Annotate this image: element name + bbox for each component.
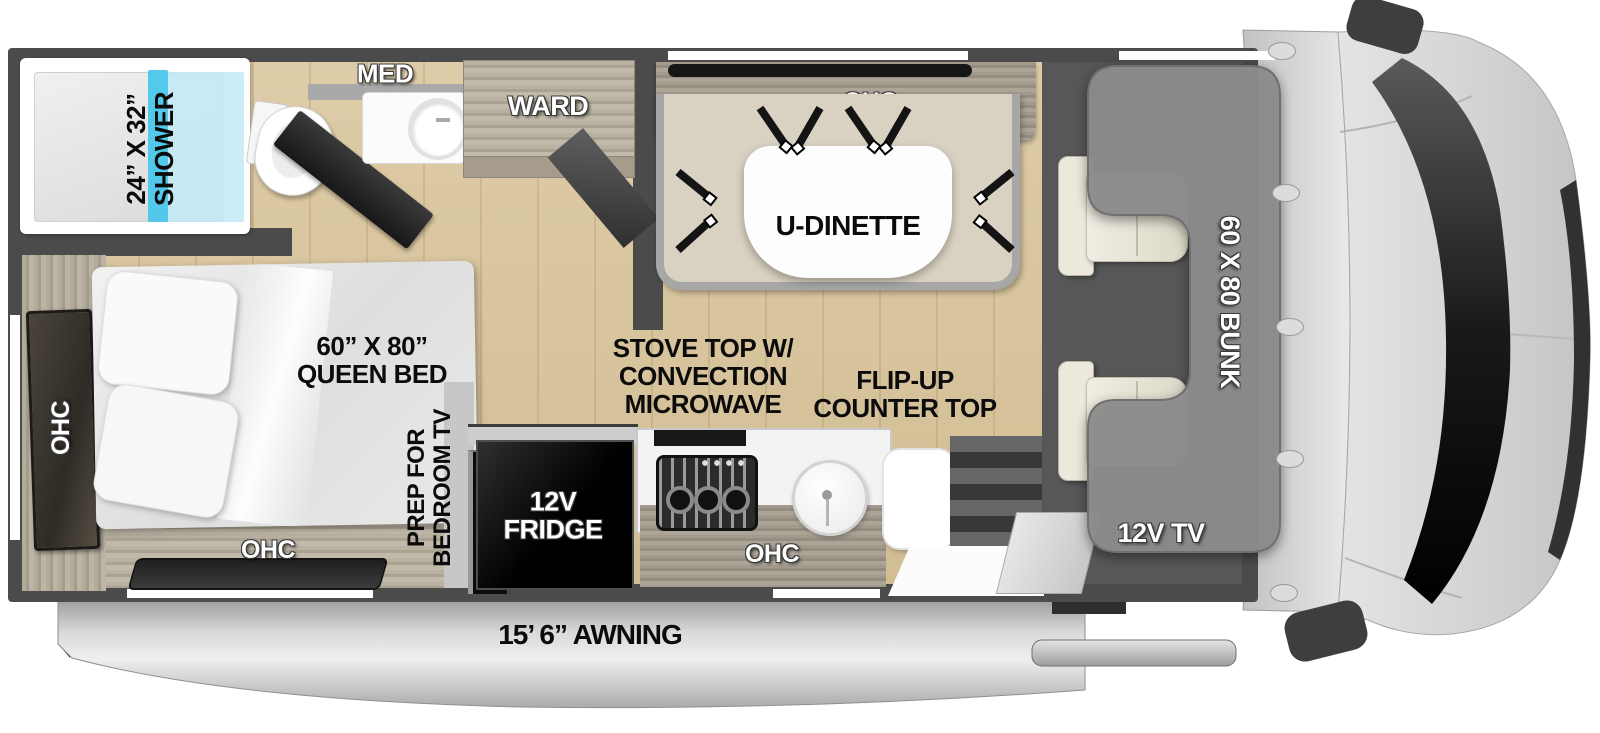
clearance-knob-icon <box>1272 184 1300 202</box>
clearance-knob-icon <box>1276 318 1304 336</box>
awning-label: 15’ 6” AWNING <box>498 620 682 650</box>
bunk-overlay <box>0 0 1600 733</box>
clearance-knob-icon <box>1270 584 1298 602</box>
cab-tv-label: 12V TV <box>1117 519 1204 547</box>
rv-floorplan: 24” X 32” SHOWER MED WARD OHC 60” X 80” … <box>0 0 1600 733</box>
clearance-knob-icon <box>1276 450 1304 468</box>
bunk-label: 60 X 80 BUNK <box>1216 216 1244 389</box>
clearance-knob-icon <box>1268 42 1296 60</box>
